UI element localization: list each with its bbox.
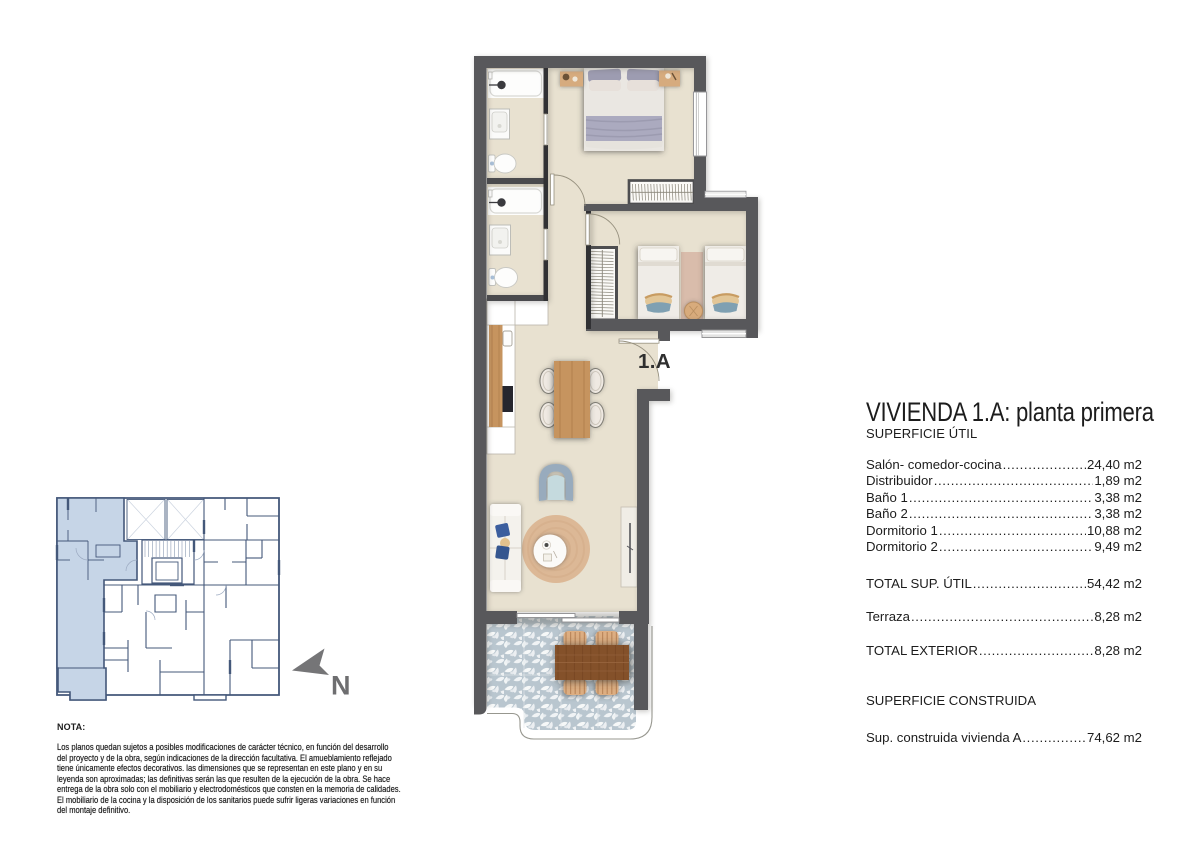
svg-text:1.A: 1.A xyxy=(638,350,671,373)
svg-text:N: N xyxy=(331,671,351,701)
